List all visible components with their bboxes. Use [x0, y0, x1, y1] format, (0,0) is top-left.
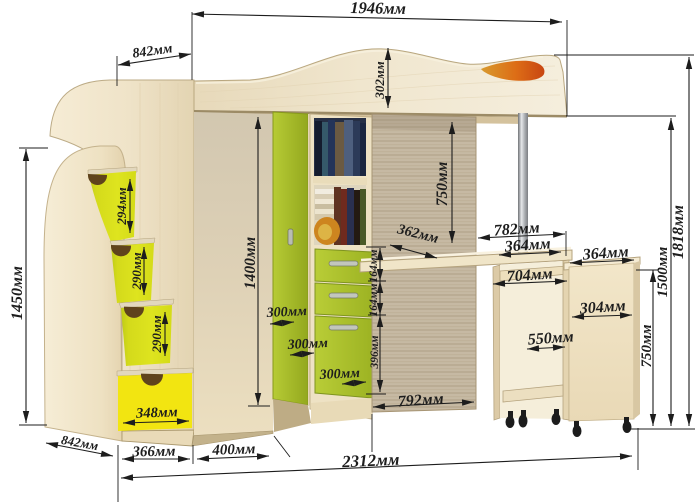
svg-text:750мм: 750мм	[434, 161, 451, 206]
svg-text:300мм: 300мм	[318, 366, 360, 383]
svg-text:302мм: 302мм	[372, 61, 387, 99]
svg-text:400мм: 400мм	[211, 441, 256, 459]
svg-text:364мм: 364мм	[503, 235, 551, 255]
svg-text:1500мм: 1500мм	[655, 247, 671, 298]
svg-text:704мм: 704мм	[506, 265, 553, 285]
svg-text:396мм: 396мм	[369, 335, 381, 369]
svg-text:364мм: 364мм	[581, 243, 629, 263]
svg-text:300мм: 300мм	[286, 336, 328, 353]
svg-text:1400мм: 1400мм	[242, 237, 259, 290]
svg-text:792мм: 792мм	[397, 390, 444, 410]
svg-text:550мм: 550мм	[527, 328, 574, 348]
svg-text:750мм: 750мм	[639, 324, 655, 367]
svg-text:294мм: 294мм	[114, 187, 129, 225]
svg-text:300мм: 300мм	[265, 304, 307, 321]
svg-text:1818мм: 1818мм	[670, 205, 687, 259]
svg-text:164мм: 164мм	[368, 283, 380, 316]
svg-text:348мм: 348мм	[135, 404, 178, 421]
svg-text:290мм: 290мм	[129, 252, 144, 290]
svg-text:164мм: 164мм	[368, 249, 380, 282]
svg-text:2312мм: 2312мм	[341, 450, 400, 472]
svg-text:304мм: 304мм	[578, 297, 626, 317]
svg-text:290мм: 290мм	[149, 315, 164, 353]
svg-text:366мм: 366мм	[131, 444, 175, 461]
svg-text:1946мм: 1946мм	[350, 0, 406, 18]
svg-text:1450мм: 1450мм	[9, 266, 26, 320]
